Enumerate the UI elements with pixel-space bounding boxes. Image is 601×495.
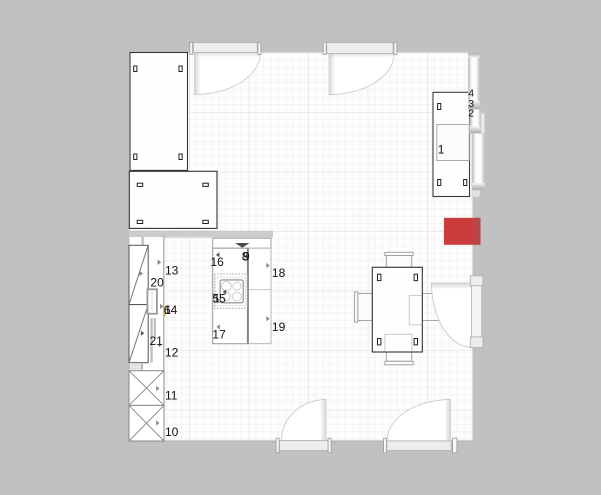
svg-text:17: 17 [212, 328, 226, 342]
svg-text:11: 11 [165, 388, 178, 402]
svg-text:1: 1 [213, 292, 220, 306]
svg-text:21: 21 [150, 334, 164, 348]
svg-text:13: 13 [165, 263, 179, 277]
svg-text:19: 19 [272, 320, 286, 334]
svg-text:12: 12 [165, 346, 179, 360]
svg-text:10: 10 [165, 425, 179, 439]
svg-text:9: 9 [243, 249, 250, 263]
svg-text:1: 1 [438, 143, 445, 157]
svg-text:1: 1 [164, 303, 171, 317]
svg-text:16: 16 [211, 255, 225, 269]
svg-text:20: 20 [150, 276, 164, 290]
svg-text:18: 18 [272, 266, 286, 280]
svg-text:2: 2 [468, 108, 474, 120]
